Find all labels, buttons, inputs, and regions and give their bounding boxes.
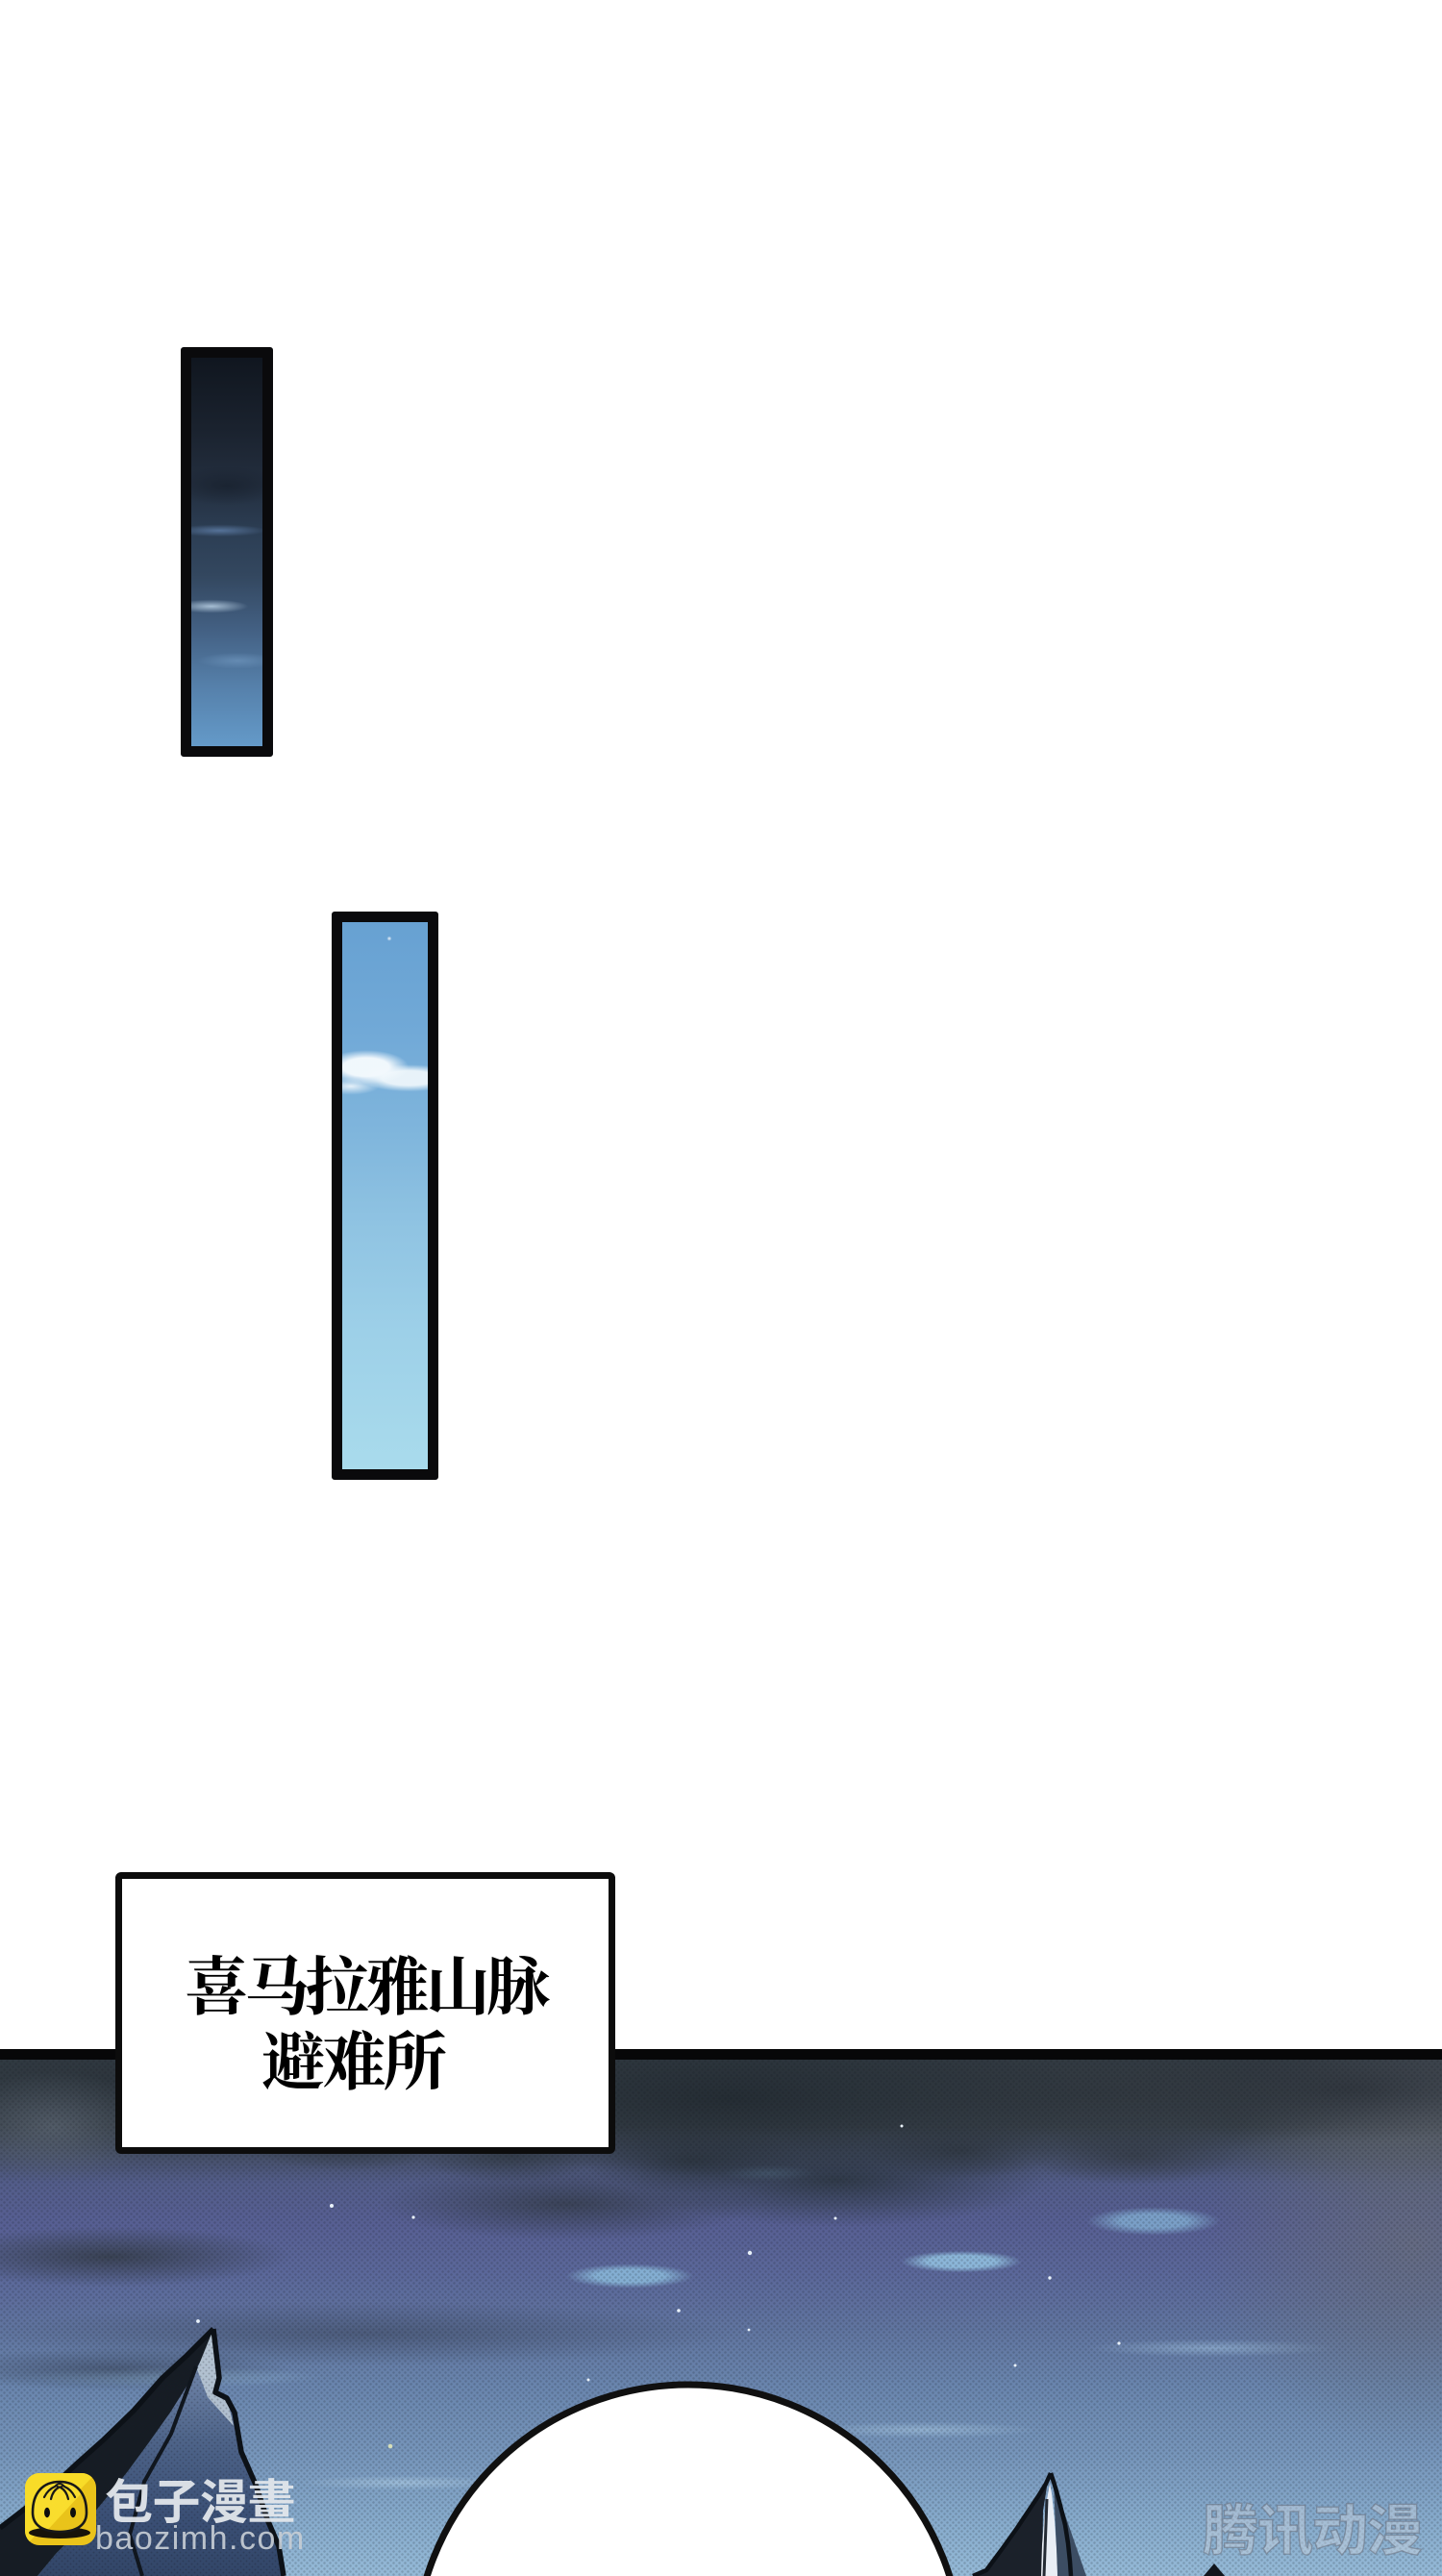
svg-text:baozimh.com: baozimh.com <box>95 2520 306 2557</box>
